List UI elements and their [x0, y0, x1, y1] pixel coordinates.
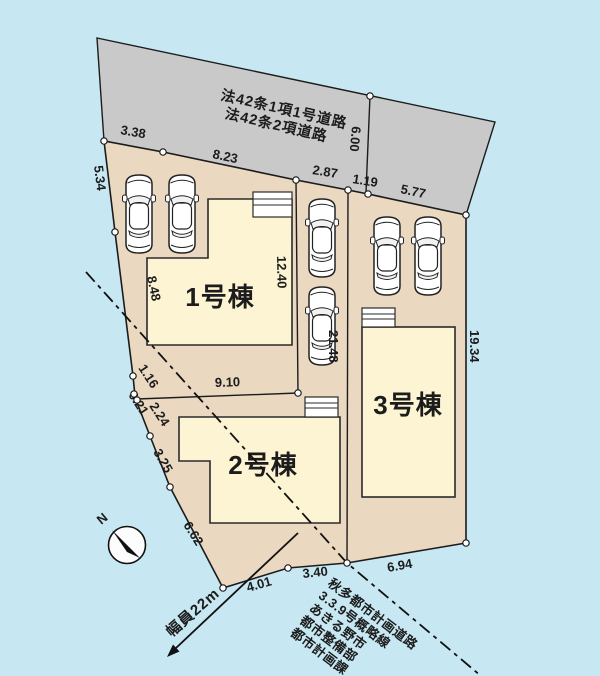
car-icon [412, 217, 445, 295]
car-icon [306, 199, 339, 277]
building-2-porch [305, 397, 338, 417]
dim-right-1: 19.34 [467, 330, 482, 363]
building-3: 3号棟 [362, 308, 455, 497]
dim-bottom-2: 3.40 [302, 563, 329, 581]
car-icon [371, 217, 404, 295]
building-2-label: 2号棟 [228, 450, 297, 480]
car-icon [166, 175, 199, 253]
dim-road-depth: 6.00 [347, 126, 364, 153]
site-plan: 1号棟 2号棟 3号棟 幅員22m N [0, 0, 600, 676]
car-icon [123, 175, 156, 253]
dim-inner-v2: 21.48 [326, 330, 341, 363]
dim-left-1: 5.34 [91, 165, 109, 193]
dim-inner-h: 9.10 [215, 374, 241, 390]
inner-boundary-21-48 [347, 190, 348, 562]
dim-inner-v1: 12.40 [274, 256, 290, 289]
building-3-label: 3号棟 [373, 390, 442, 420]
building-1-porch [253, 192, 292, 217]
building-1-label: 1号棟 [185, 282, 254, 312]
site-plan-svg: 1号棟 2号棟 3号棟 幅員22m N [0, 0, 600, 676]
building-3-porch [362, 308, 395, 327]
